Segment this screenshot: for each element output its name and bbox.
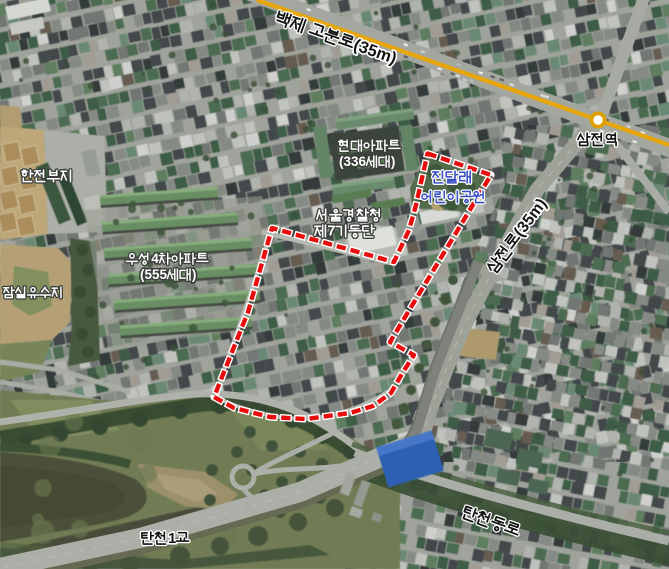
svg-text:4: 4 bbox=[151, 251, 159, 266]
svg-text:): ) bbox=[391, 154, 396, 169]
svg-text:7: 7 bbox=[327, 224, 335, 240]
svg-text:1: 1 bbox=[168, 531, 176, 547]
svg-text:): ) bbox=[192, 267, 197, 282]
svg-text:(555: (555 bbox=[140, 267, 168, 282]
svg-text:(336: (336 bbox=[339, 154, 367, 169]
